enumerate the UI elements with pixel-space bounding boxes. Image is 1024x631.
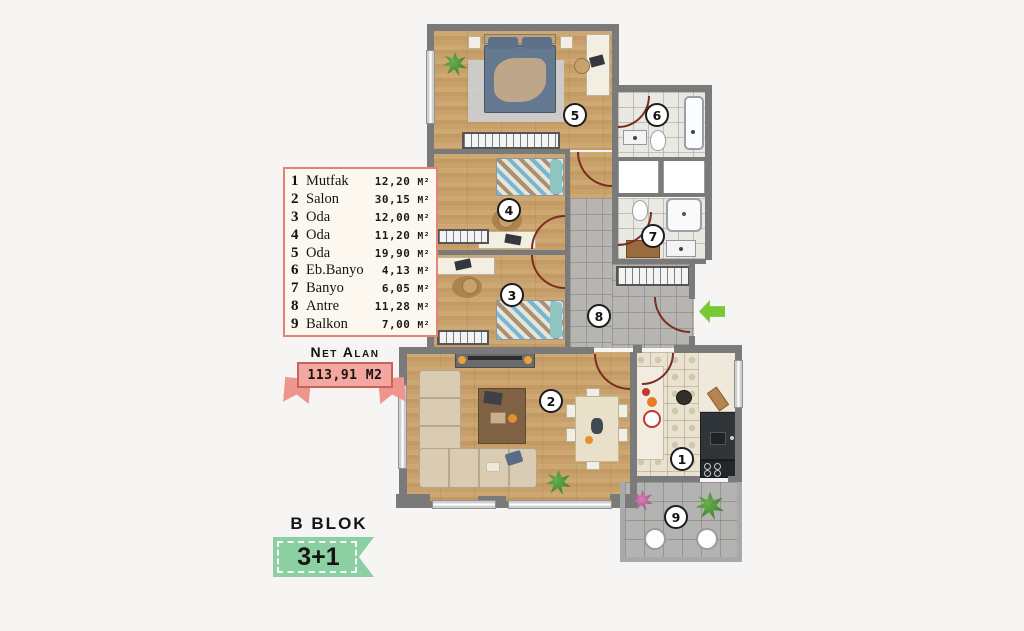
window	[508, 500, 612, 509]
legend-room-name: Balkon	[306, 316, 382, 333]
speaker-icon	[524, 356, 532, 364]
burner-icon	[714, 463, 721, 470]
drain-icon	[633, 136, 637, 140]
legend-room-area: 30,15 M²	[375, 193, 430, 206]
bowl-icon	[508, 414, 517, 423]
block-name: B BLOK	[283, 514, 375, 534]
legend-room-number: 9	[291, 316, 306, 333]
food-icon	[642, 388, 650, 396]
dining-chair	[586, 388, 600, 397]
legend-row: 7Banyo6,05 M²	[291, 280, 430, 297]
radiator	[437, 330, 489, 345]
faucet-icon	[730, 436, 734, 440]
office-chair	[462, 278, 478, 294]
legend-room-name: Banyo	[306, 280, 382, 297]
closet	[618, 160, 659, 194]
tv-screen	[468, 356, 522, 360]
wall	[618, 193, 705, 197]
balcony-railing	[620, 482, 625, 562]
room-marker-oda4: 4	[497, 198, 521, 222]
bed-pillow	[550, 302, 562, 338]
wall	[565, 152, 570, 352]
nightstand	[560, 36, 573, 49]
room-marker-salon: 2	[539, 389, 563, 413]
legend-room-number: 5	[291, 245, 306, 262]
drain-icon	[691, 130, 695, 134]
legend-room-name: Oda	[306, 245, 375, 262]
wall	[674, 345, 742, 353]
drain-icon	[682, 212, 686, 216]
bed-pillow	[488, 37, 518, 49]
legend-row: 8Antre11,28 M²	[291, 298, 430, 315]
table-vase	[591, 418, 603, 434]
balcony-railing	[620, 557, 742, 562]
wall	[433, 149, 570, 154]
speaker-icon	[458, 356, 466, 364]
legend-room-name: Eb.Banyo	[306, 262, 382, 279]
room-marker-oda3: 3	[500, 283, 524, 307]
balcony-railing	[737, 482, 742, 562]
legend-room-number: 7	[291, 280, 306, 297]
laptop-icon	[483, 391, 502, 405]
cooking-pot	[676, 390, 692, 405]
legend-row: 4Oda11,20 M²	[291, 227, 430, 244]
entrance-arrow-icon	[699, 298, 725, 325]
legend-room-name: Oda	[306, 209, 375, 226]
legend-row: 6Eb.Banyo4,13 M²	[291, 262, 430, 279]
wall	[427, 24, 619, 31]
legend-room-area: 12,20 M²	[375, 175, 430, 188]
burner-icon	[704, 470, 711, 477]
legend-room-number: 4	[291, 227, 306, 244]
dining-chair	[586, 461, 600, 470]
radiator	[462, 132, 560, 149]
legend-room-area: 7,00 M²	[382, 318, 430, 331]
sofa-cushion	[486, 462, 500, 472]
food-icon	[647, 397, 657, 407]
room-marker-mutfak: 1	[670, 447, 694, 471]
balcony-chair	[696, 528, 718, 550]
legend-room-number: 3	[291, 209, 306, 226]
wall	[612, 85, 712, 92]
wall-pillar	[396, 494, 430, 508]
legend-row: 1Mutfak12,20 M²	[291, 173, 430, 190]
legend-room-area: 19,90 M²	[375, 247, 430, 260]
room-marker-oda5: 5	[563, 103, 587, 127]
burner-icon	[714, 470, 721, 477]
coffee-table-tray	[490, 412, 506, 424]
legend-room-area: 11,28 M²	[375, 300, 430, 313]
legend-room-area: 11,20 M²	[375, 229, 430, 242]
legend-row: 9Balkon7,00 M²	[291, 316, 430, 333]
drain-icon	[679, 247, 683, 251]
dining-chair	[618, 428, 628, 442]
window	[432, 500, 496, 509]
legend-room-name: Oda	[306, 227, 375, 244]
legend-room-number: 2	[291, 191, 306, 208]
wall	[630, 352, 637, 508]
legend-room-area: 4,13 M²	[382, 264, 430, 277]
legend-room-name: Salon	[306, 191, 375, 208]
legend-row: 5Oda19,90 M²	[291, 245, 430, 262]
radiator	[437, 229, 489, 244]
legend-room-name: Antre	[306, 298, 375, 315]
wall	[659, 160, 663, 194]
radiator	[616, 266, 690, 286]
legend-room-number: 6	[291, 262, 306, 279]
window	[734, 360, 743, 408]
window	[426, 50, 435, 124]
plan-type-ribbon: 3+1	[273, 537, 374, 577]
dining-chair	[618, 404, 628, 418]
dining-chair	[566, 428, 576, 442]
plan-type-label: 3+1	[297, 543, 349, 572]
legend-room-name: Mutfak	[306, 173, 375, 190]
wall	[612, 24, 619, 92]
net-area-label: Net Alan	[289, 344, 401, 360]
plate-icon	[643, 410, 661, 428]
bed-blanket	[494, 58, 546, 102]
balcony-chair	[644, 528, 666, 550]
legend-row: 3Oda12,00 M²	[291, 209, 430, 226]
legend-room-number: 1	[291, 173, 306, 190]
legend-room-number: 8	[291, 298, 306, 315]
wall	[705, 85, 712, 260]
wall	[728, 476, 737, 482]
room-marker-ebbanyo: 6	[645, 103, 669, 127]
room-marker-balkon: 9	[664, 505, 688, 529]
legend-room-area: 6,05 M²	[382, 282, 430, 295]
net-area-value: 113,91 M2	[297, 362, 393, 388]
office-chair	[574, 58, 590, 74]
room-marker-banyo: 7	[641, 224, 665, 248]
legend-row: 2Salon30,15 M²	[291, 191, 430, 208]
room-marker-antre: 8	[587, 304, 611, 328]
dining-chair	[566, 404, 576, 418]
floorplan-canvas: 1Mutfak12,20 M² 2Salon30,15 M² 3Oda12,00…	[0, 0, 1024, 631]
bed-pillow	[522, 37, 552, 49]
wall	[689, 259, 695, 299]
wall	[630, 476, 700, 482]
nightstand	[468, 36, 481, 49]
bathtub	[684, 96, 704, 150]
legend-room-area: 12,00 M²	[375, 211, 430, 224]
burner-icon	[704, 463, 711, 470]
toilet	[650, 130, 666, 151]
bed-pillow	[550, 160, 562, 194]
room-legend: 1Mutfak12,20 M² 2Salon30,15 M² 3Oda12,00…	[283, 167, 438, 337]
closet	[663, 160, 705, 194]
kitchen-sink	[710, 432, 726, 445]
fruit-bowl-icon	[585, 436, 593, 444]
